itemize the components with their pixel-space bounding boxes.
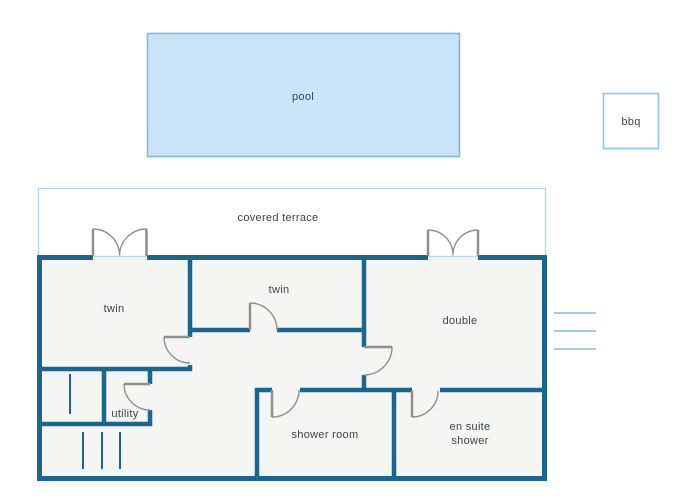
room-label-twin-center: twin [269,284,290,296]
bbq-area: bbq [604,94,659,149]
room-label-twin-left: twin [104,303,125,315]
pool-area: pool [148,34,460,157]
room-label-shower-room: shower room [292,429,359,441]
floor-plan-canvas: pool bbq covered terrace [0,0,700,500]
floor-plan-svg: pool bbq covered terrace [0,0,700,500]
room-label-double: double [443,315,478,327]
room-label-utility: utility [111,408,138,420]
pool-label: pool [292,91,314,103]
bbq-label: bbq [621,116,640,128]
right-steps [554,313,596,349]
covered-terrace: covered terrace [39,189,546,257]
terrace-label: covered terrace [238,212,319,224]
